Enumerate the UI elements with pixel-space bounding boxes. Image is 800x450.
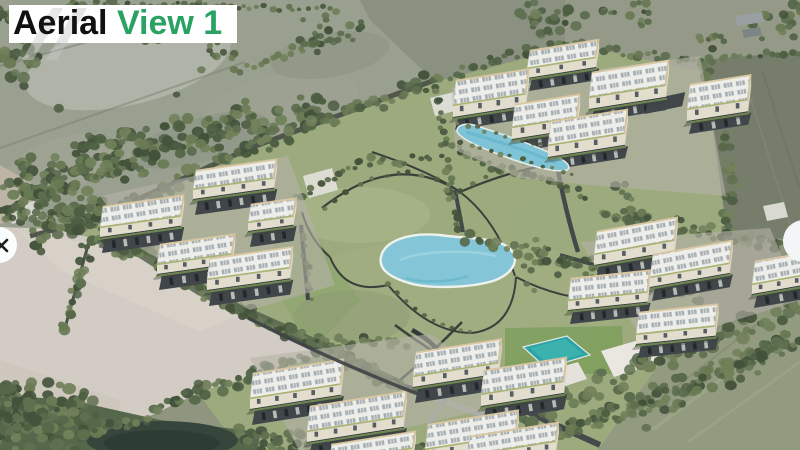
svg-text:Aerial View 1: Aerial View 1 (13, 4, 222, 42)
